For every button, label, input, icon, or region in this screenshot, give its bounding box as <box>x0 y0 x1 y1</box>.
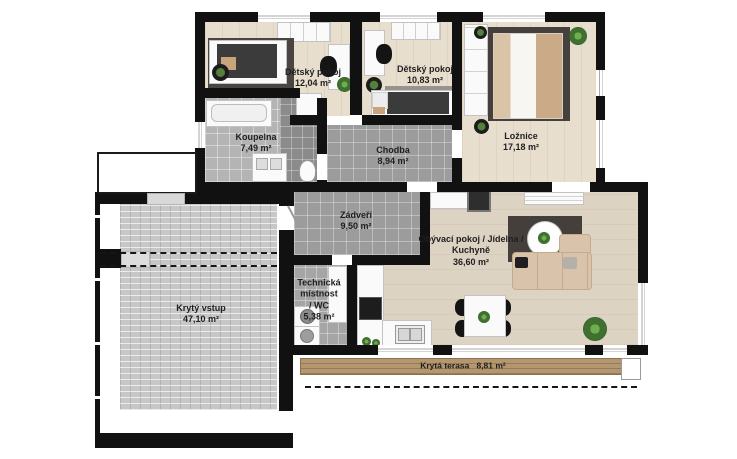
wall-segment <box>317 98 327 154</box>
wall-segment <box>183 192 290 204</box>
wall-segment <box>285 345 378 355</box>
window <box>483 12 545 22</box>
wall-segment <box>195 182 407 192</box>
desk-chair <box>376 44 392 64</box>
room-area: 47,10 m² <box>176 314 226 325</box>
room-name: Dětský pokoj <box>285 67 341 78</box>
wall-segment <box>362 115 452 125</box>
plant-icon <box>474 119 489 134</box>
plant-icon <box>474 26 487 39</box>
room-name: Dětský pokoj <box>397 64 453 75</box>
stove <box>467 190 491 212</box>
room-name: Chodba <box>376 145 410 156</box>
wall-segment <box>638 182 648 283</box>
sink-basin <box>398 328 410 341</box>
wall-segment <box>97 433 293 448</box>
wall-segment <box>433 345 452 355</box>
window <box>596 120 605 168</box>
wall-segment <box>279 230 294 351</box>
sofa-pillow <box>563 257 577 269</box>
room-area: 36,60 m² <box>418 257 523 268</box>
wall-segment <box>437 182 552 192</box>
wall-segment <box>452 12 462 116</box>
wall-tick <box>94 278 101 281</box>
plant-icon <box>212 64 229 81</box>
roof-overhang-line <box>305 386 637 388</box>
room-area: 17,18 m² <box>503 142 539 153</box>
glazed-door <box>638 283 648 345</box>
room-label-kryta-terasa: Krytá terasa 8,81 m² <box>420 361 506 372</box>
room-name: Zádveří <box>340 210 372 221</box>
table-plant-icon <box>538 232 550 244</box>
wall-segment <box>279 255 332 265</box>
dryer-drum <box>300 329 314 343</box>
room-label-zadveri: Zádveří 9,50 m² <box>340 210 372 233</box>
ceiling-vent <box>524 192 584 205</box>
wall-tick <box>94 215 101 218</box>
plant-icon <box>569 27 587 45</box>
bed-blanket <box>373 107 385 114</box>
wall-tick <box>94 396 101 399</box>
floor-plan: Dětský pokoj 12,04 m² Dětský pokoj 10,83… <box>0 0 737 459</box>
wall-tick <box>94 342 101 345</box>
roof-overhang-line <box>100 265 277 267</box>
wall-segment <box>279 351 293 411</box>
table-plant-icon <box>478 311 490 323</box>
wall-segment <box>195 88 300 98</box>
room-name: Koupelna <box>235 132 276 143</box>
room-name: Krytá terasa <box>420 361 469 371</box>
window <box>603 345 627 355</box>
room-area: 7,49 m² <box>235 143 276 154</box>
kitchen-tall-units <box>430 192 472 209</box>
bathtub-basin <box>211 104 267 122</box>
sink-basin <box>410 328 422 341</box>
terrace-end-step <box>621 358 641 380</box>
room-name: Krytý vstup <box>176 303 226 314</box>
roof-overhang-line <box>100 252 277 254</box>
wardrobe <box>391 22 441 40</box>
window <box>596 70 605 96</box>
room-area: 8,81 m² <box>476 361 505 371</box>
room-label-technicka-mistnost-wc: Technická místnost / WC 5,38 m² <box>297 278 340 323</box>
wall-segment <box>452 158 462 182</box>
toilet <box>299 160 316 182</box>
room-area: 5,38 m² <box>297 311 340 322</box>
room-name: Ložnice <box>503 131 539 142</box>
room-area: 10,83 m² <box>397 75 453 86</box>
wall-segment <box>317 180 327 192</box>
wall-segment <box>585 345 603 355</box>
exterior-niche <box>97 152 197 194</box>
room-label-detsky-pokoj-2: Dětský pokoj 10,83 m² <box>397 64 453 87</box>
room-label-kryty-vstup: Krytý vstup 47,10 m² <box>176 303 226 326</box>
room-area: 8,94 m² <box>376 156 410 167</box>
double-bed <box>493 33 563 119</box>
wall-segment <box>95 192 100 448</box>
room-label-loznice: Ložnice 17,18 m² <box>503 131 539 154</box>
plant-icon <box>583 317 607 341</box>
sink-basin <box>256 158 268 170</box>
cooktop <box>359 297 382 320</box>
bed-mattress <box>387 92 449 114</box>
room-label-chodba: Chodba 8,94 m² <box>376 145 410 168</box>
window <box>258 12 310 22</box>
sink-basin <box>270 158 282 170</box>
room-area: 9,50 m² <box>340 221 372 232</box>
entry-gate <box>147 193 185 205</box>
window <box>195 122 205 148</box>
room-name: Technická místnost / WC <box>297 278 340 312</box>
room-area: 12,04 m² <box>285 78 341 89</box>
wall-segment <box>452 116 462 130</box>
room-label-obyvaci-pokoj: Obývací pokoj / Jídelna / Kuchyně 36,60 … <box>418 234 523 268</box>
terrace-sliding-door <box>452 345 585 355</box>
room-label-detsky-pokoj-1: Dětský pokoj 12,04 m² <box>285 67 341 90</box>
window <box>378 345 433 355</box>
room-name: Obývací pokoj / Jídelna / Kuchyně <box>418 234 523 257</box>
wall-segment <box>627 345 648 355</box>
window <box>380 12 437 22</box>
room-label-koupelna: Koupelna 7,49 m² <box>235 132 276 155</box>
wall-segment <box>347 265 357 355</box>
wall-segment <box>350 12 362 115</box>
